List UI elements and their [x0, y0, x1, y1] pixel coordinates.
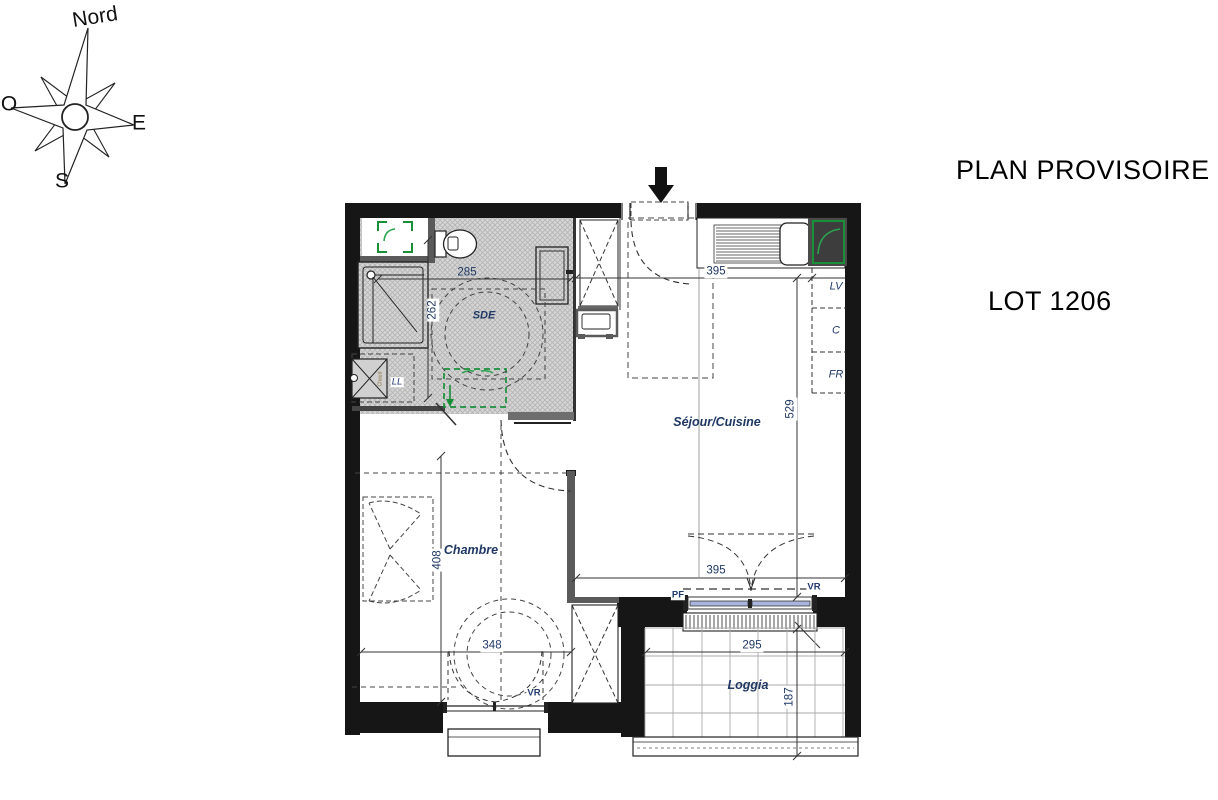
shower [358, 262, 428, 348]
floor-plan-drawing [0, 0, 1218, 800]
dim-living-width-bottom: 395 [704, 565, 727, 577]
appliance-label-washer: LL [391, 377, 404, 387]
compass-rose [11, 28, 134, 184]
plan-status-title: PLAN PROVISOIRE [956, 157, 1210, 184]
room-label-loggia: Loggia [728, 679, 769, 692]
bedroom-door-swing [501, 420, 571, 491]
appliance-label-water-heater: Chaud [379, 372, 384, 387]
window-sill [448, 729, 540, 756]
opening-label-vr-bedroom: VR [526, 688, 541, 698]
glazing-right [752, 601, 810, 606]
dim-living-width-top: 395 [704, 266, 727, 278]
sink-bowl [780, 223, 810, 265]
room-label-living: Séjour/Cuisine [673, 416, 761, 429]
opening-label-pf: PF [671, 590, 685, 600]
dim-loggia-depth: 187 [784, 685, 796, 708]
dim-bathroom-depth: 262 [427, 298, 439, 321]
room-label-bedroom: Chambre [444, 544, 498, 557]
bedroom-guide-lines [352, 425, 567, 709]
room-label-bathroom: SDE [473, 311, 496, 322]
appliance-label-dishwasher: LV [829, 282, 844, 293]
floor-plan-page: PLAN PROVISOIRE LOT 1206 Nord O E S SDE … [0, 0, 1218, 800]
dim-bedroom-width: 348 [480, 640, 503, 652]
loggia-railing [633, 737, 858, 756]
compass-west-label: O [1, 94, 17, 115]
kitchen-tall-unit [808, 218, 847, 266]
loggia-door [683, 534, 820, 648]
bathroom-niche [362, 218, 428, 256]
opening-label-vr-loggia: VR [806, 582, 821, 592]
glazing-left [690, 601, 748, 606]
entry-bench [577, 310, 617, 339]
bedroom-wardrobe [363, 497, 433, 603]
entry-door-frame [622, 202, 696, 220]
lot-number: LOT 1206 [988, 288, 1112, 315]
compass-east-label: E [132, 113, 146, 134]
bedroom-closet [572, 605, 618, 703]
dim-bedroom-depth: 408 [432, 548, 444, 571]
dim-living-depth: 529 [785, 397, 797, 420]
entry-closet [578, 220, 618, 310]
entrance-arrow [648, 167, 674, 203]
toilet [435, 230, 477, 258]
appliance-label-fridge: FR [828, 370, 845, 381]
appliance-label-cupboard: C [831, 326, 841, 337]
compass-south-label: S [55, 171, 69, 192]
dim-loggia-width: 295 [740, 640, 763, 652]
dim-bathroom-width: 285 [455, 267, 478, 279]
entry-door-swing [631, 221, 691, 284]
